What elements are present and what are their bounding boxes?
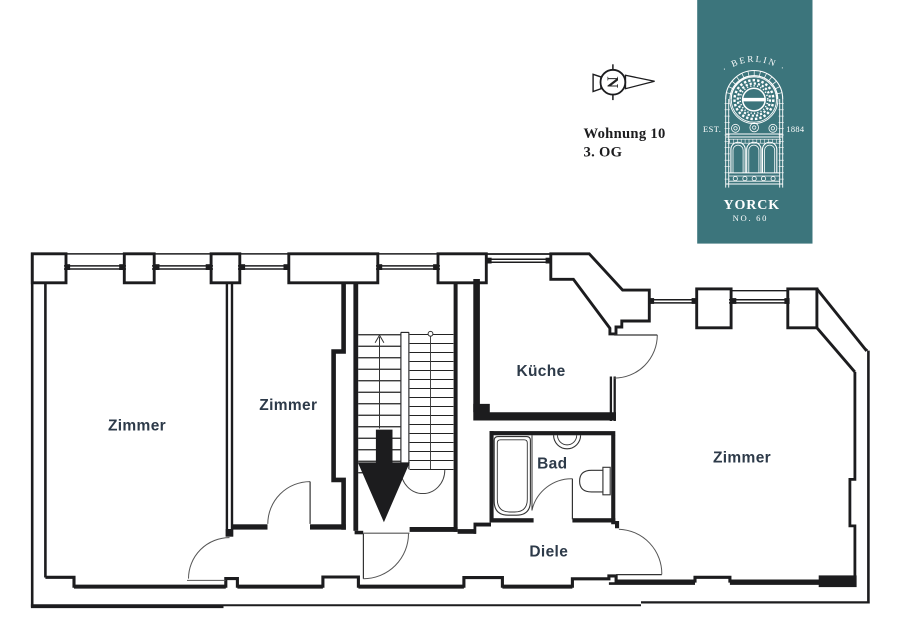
- svg-text:Zimmer: Zimmer: [108, 418, 166, 435]
- svg-text:Bad: Bad: [537, 455, 567, 472]
- svg-text:N: N: [604, 77, 621, 89]
- svg-text:Zimmer: Zimmer: [259, 397, 317, 414]
- svg-text:Küche: Küche: [516, 363, 565, 380]
- svg-text:Wohnung 10: Wohnung 10: [584, 126, 666, 142]
- svg-text:NO. 60: NO. 60: [733, 213, 769, 223]
- svg-text:3. OG: 3. OG: [584, 145, 623, 161]
- svg-text:YORCK: YORCK: [723, 198, 780, 213]
- svg-text:Diele: Diele: [529, 544, 568, 561]
- svg-text:EST.: EST.: [703, 125, 721, 134]
- svg-text:Zimmer: Zimmer: [713, 450, 771, 467]
- svg-text:1884: 1884: [786, 125, 804, 134]
